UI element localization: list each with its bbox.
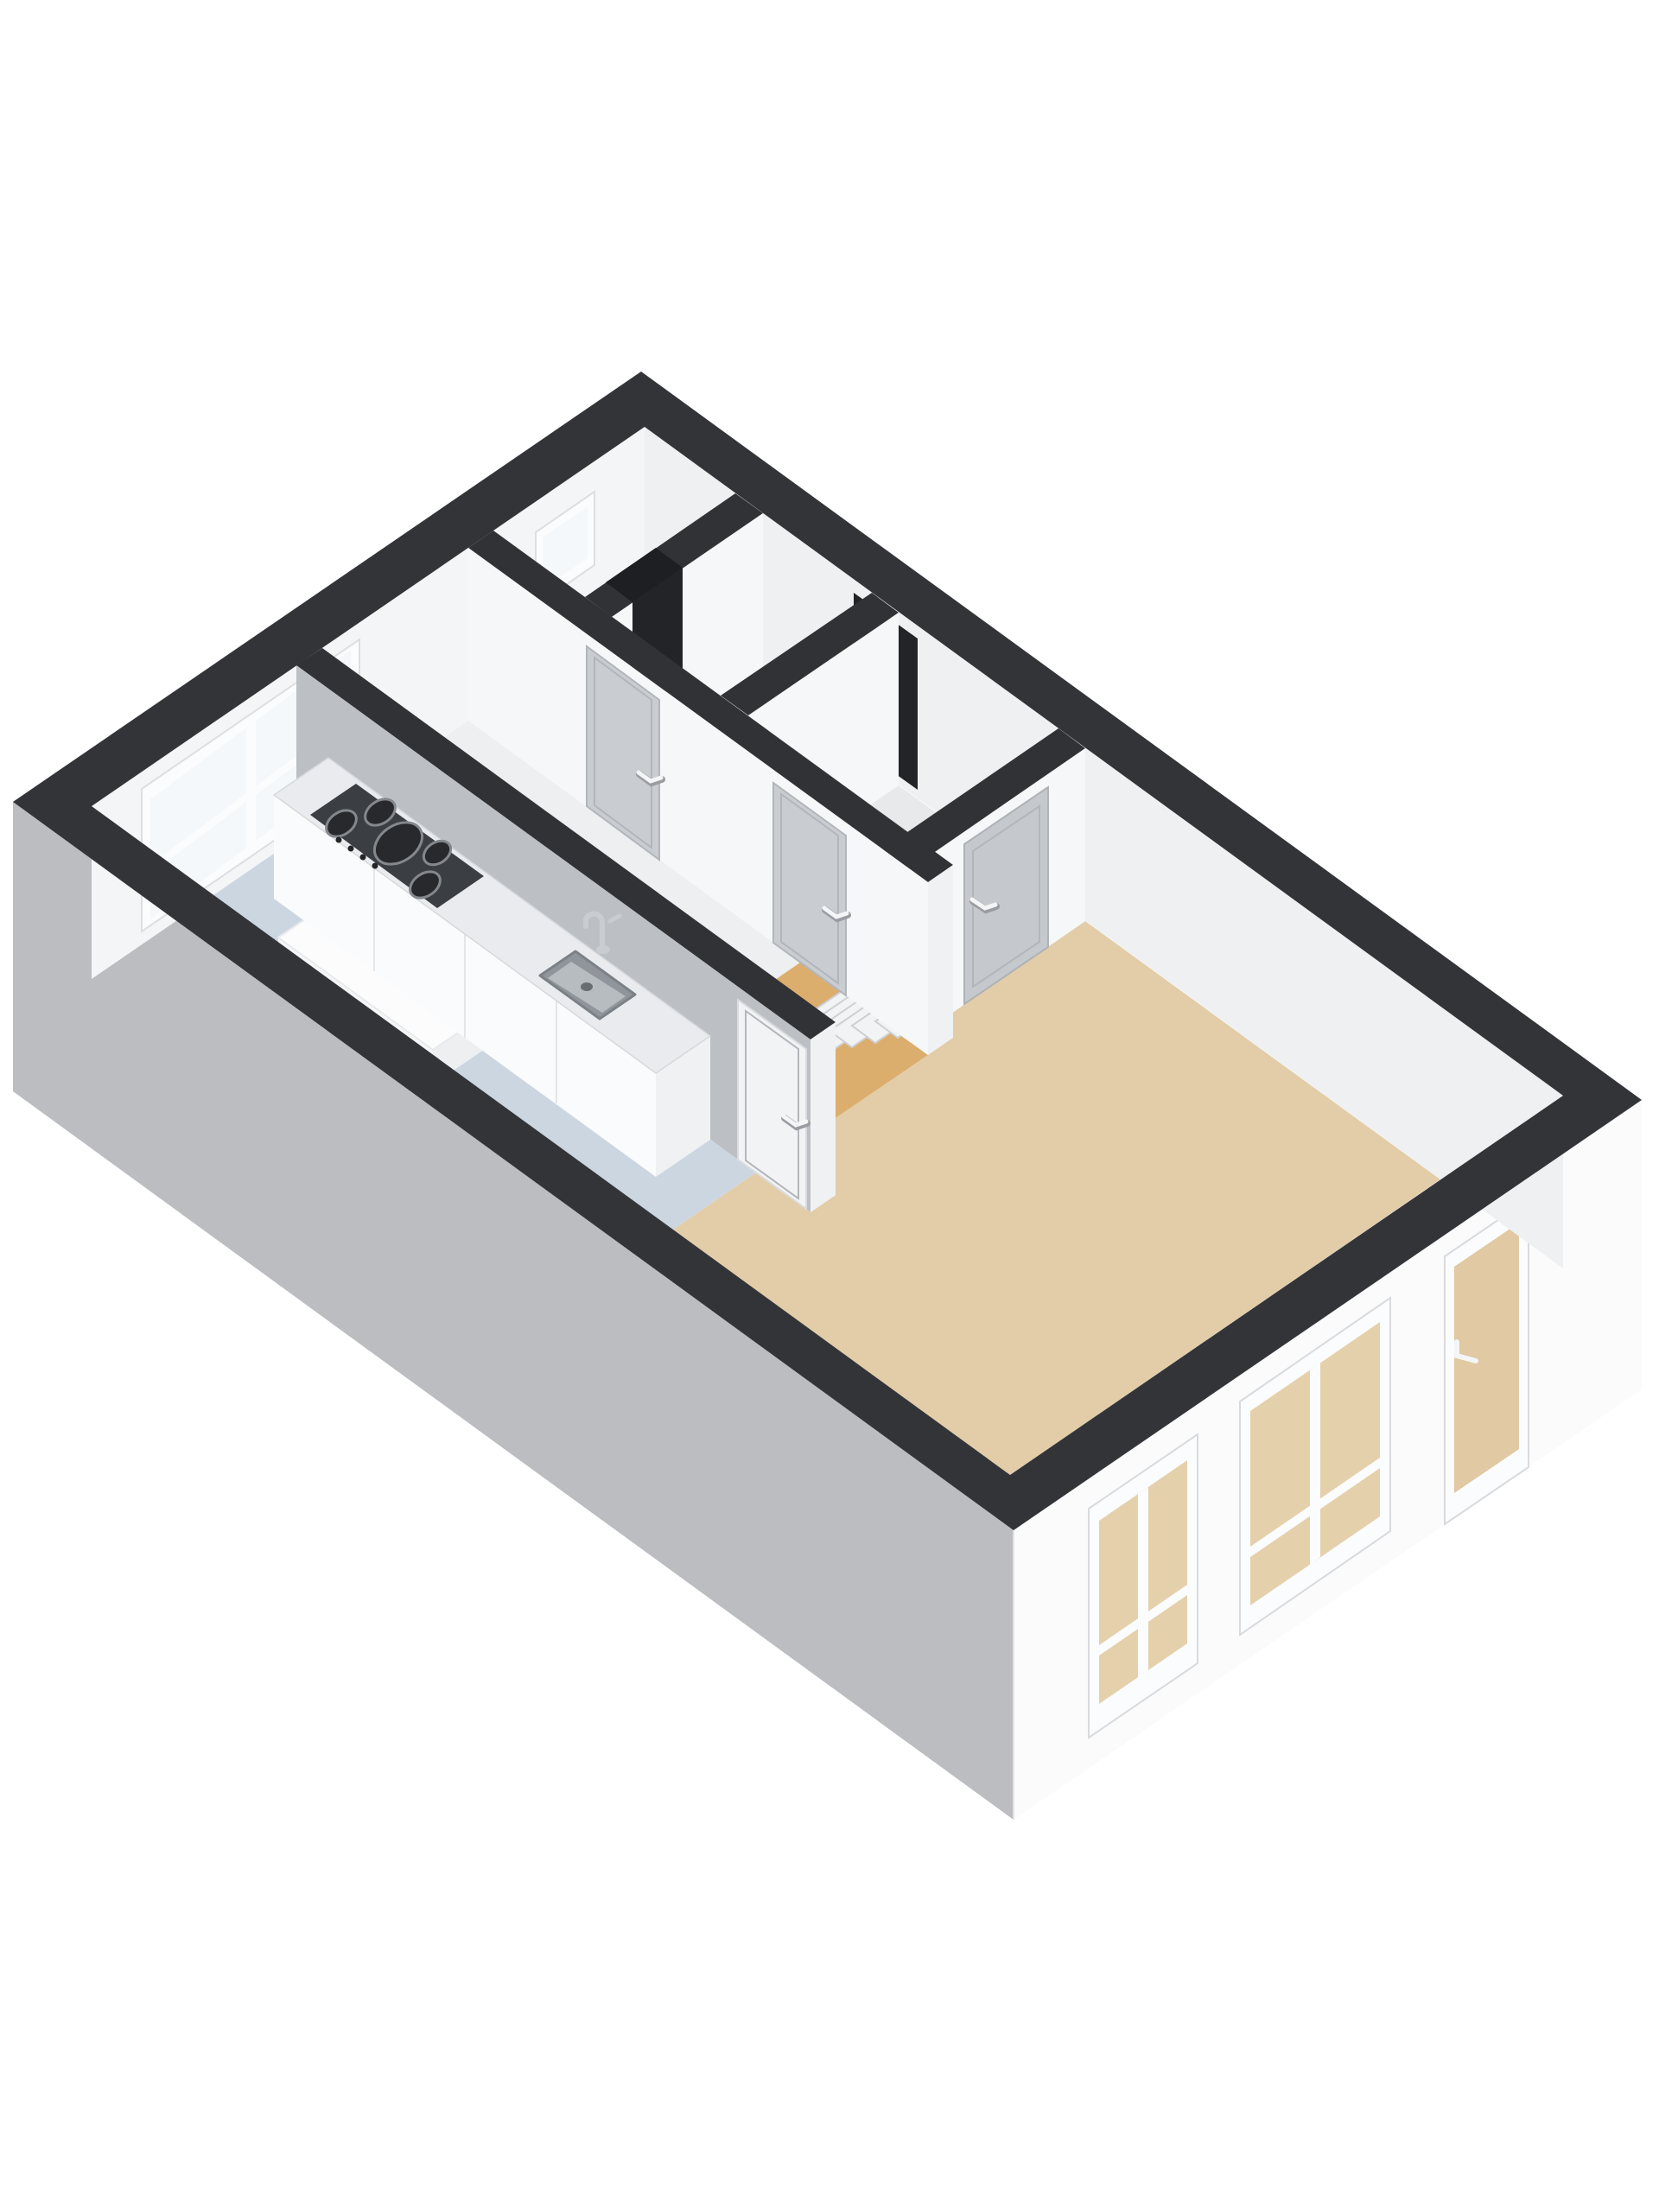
kitchen-wall-end-face xyxy=(810,1022,836,1212)
knob xyxy=(348,846,354,852)
knob xyxy=(360,855,366,861)
floorplan-3d-viewport[interactable] xyxy=(0,0,1659,2212)
sink-drain xyxy=(581,982,593,991)
facade-window-1-mullion xyxy=(1138,1487,1148,1677)
facade-glazed-door xyxy=(1445,1199,1529,1524)
facade-window-2-mullion xyxy=(1310,1363,1320,1565)
hallway-wall-end-face xyxy=(928,865,953,1055)
kitchen-window-mullion xyxy=(246,721,256,848)
knob xyxy=(372,863,378,869)
faucet-base xyxy=(596,945,610,954)
knob xyxy=(336,837,342,843)
floorplan-canvas xyxy=(0,0,1659,2212)
